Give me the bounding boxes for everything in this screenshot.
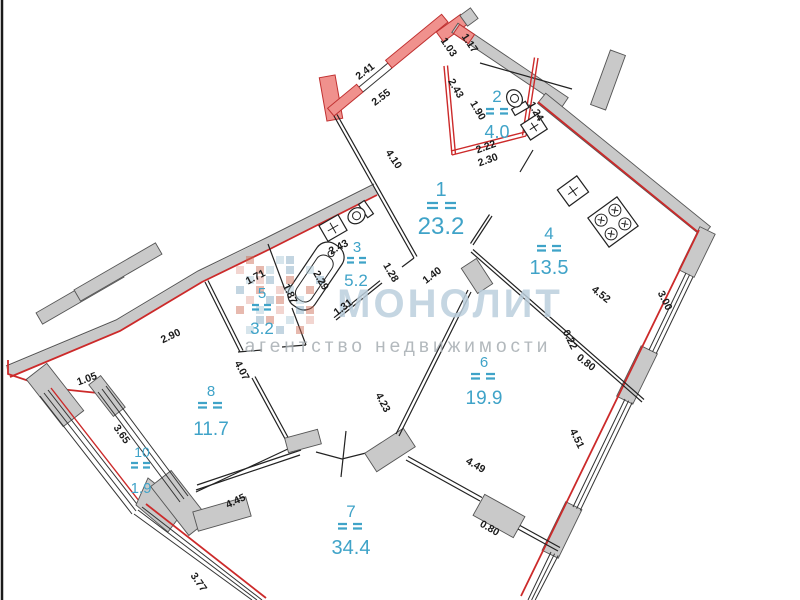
- dimension-label: 4.23: [373, 391, 393, 415]
- room-label-separator: [131, 463, 150, 468]
- room-label-separator: [198, 403, 222, 408]
- dimension-label: 2.43: [445, 77, 466, 101]
- dimension-tick: [341, 431, 346, 477]
- pillar: [26, 363, 83, 426]
- watermark: МОНОЛИТ агентство недвижимости: [236, 256, 563, 357]
- dimension-label: 4.07: [232, 359, 252, 383]
- wall: [205, 282, 240, 352]
- window: [649, 273, 686, 350]
- wall: [473, 216, 492, 245]
- dimension-label: 2.90: [159, 326, 183, 346]
- dimension-label: 2.41: [353, 61, 377, 83]
- wall: [255, 377, 293, 447]
- wall: [196, 455, 300, 490]
- svg-text:11.7: 11.7: [193, 419, 229, 440]
- watermark-brand: МОНОЛИТ: [337, 282, 563, 326]
- svg-text:4: 4: [544, 224, 553, 243]
- svg-text:34.4: 34.4: [332, 537, 371, 559]
- svg-text:1: 1: [435, 179, 446, 201]
- entry-door-swing: [480, 63, 572, 89]
- svg-text:6: 6: [480, 354, 488, 371]
- dimension-label: 1.90: [467, 99, 488, 123]
- room-label-2: 2 4.0: [484, 87, 509, 142]
- svg-text:7: 7: [346, 502, 355, 521]
- dimension-label: 0.22: [560, 328, 580, 352]
- window: [532, 554, 555, 600]
- room-label-separator: [537, 246, 561, 251]
- svg-text:13.5: 13.5: [530, 257, 569, 279]
- wall: [520, 150, 533, 172]
- svg-text:3: 3: [353, 239, 361, 256]
- svg-text:5: 5: [258, 285, 266, 302]
- stove-icon: [588, 197, 638, 247]
- vestibule-wall: [591, 50, 626, 110]
- svg-text:3.2: 3.2: [250, 319, 274, 338]
- crossing-pillar: [74, 243, 162, 301]
- wall: [252, 378, 290, 448]
- window: [656, 277, 693, 354]
- floor-plan-screenshot: МОНОЛИТ агентство недвижимости 1 23.2 2 …: [0, 0, 800, 600]
- dimension-label: 1.28: [380, 261, 401, 285]
- wall: [197, 450, 301, 485]
- floor-plan-image: МОНОЛИТ агентство недвижимости 1 23.2 2 …: [0, 0, 800, 600]
- svg-text:8: 8: [207, 383, 215, 400]
- dimension-label: 4.10: [383, 147, 404, 171]
- room-label-separator: [486, 109, 508, 114]
- sink-icon: [557, 176, 588, 206]
- dimension-label: 3.00: [655, 289, 675, 313]
- window: [573, 399, 625, 507]
- toilet-icon: [503, 87, 529, 116]
- pillar: [285, 429, 322, 452]
- dimension-label: 0.80: [574, 352, 598, 374]
- wall: [402, 258, 414, 267]
- window: [44, 393, 136, 511]
- wall: [471, 215, 490, 244]
- wall: [337, 115, 417, 257]
- room-label-separator: [347, 258, 366, 263]
- dimension-label: 1.03: [438, 35, 459, 59]
- room-label-1: 1 23.2: [418, 179, 465, 240]
- watermark-tagline: агентство недвижимости: [245, 336, 552, 357]
- room-label-8: 8 11.7: [193, 383, 229, 440]
- pillar: [617, 346, 658, 404]
- svg-text:10: 10: [134, 444, 150, 460]
- wall: [334, 116, 414, 258]
- svg-text:2: 2: [492, 87, 501, 106]
- room-label-10: 10 1.9: [131, 444, 152, 497]
- svg-text:23.2: 23.2: [418, 213, 465, 240]
- room-label-4: 4 13.5: [530, 224, 569, 279]
- room-label-6: 6 19.9: [466, 354, 503, 409]
- pillar: [365, 428, 416, 472]
- window: [40, 396, 132, 514]
- svg-text:1.9: 1.9: [131, 480, 152, 497]
- room-label-separator: [427, 203, 456, 208]
- red-wall-stub: [319, 75, 342, 121]
- dimension-label: 4.49: [464, 455, 488, 476]
- balcony-red-line: [51, 388, 143, 506]
- room-label-7: 7 34.4: [332, 502, 371, 559]
- window: [577, 401, 629, 509]
- dimension-label: 2.55: [369, 87, 393, 109]
- window: [48, 390, 140, 508]
- dimension-label: 4.52: [589, 284, 613, 306]
- room-label-separator: [338, 524, 362, 529]
- room-label-separator: [471, 374, 495, 379]
- svg-text:19.9: 19.9: [466, 388, 503, 409]
- svg-text:5.2: 5.2: [344, 271, 368, 290]
- dimension-label: 3.77: [188, 570, 210, 594]
- dimension-label: 1.17: [459, 31, 480, 55]
- dimension-label: 4.51: [567, 427, 587, 451]
